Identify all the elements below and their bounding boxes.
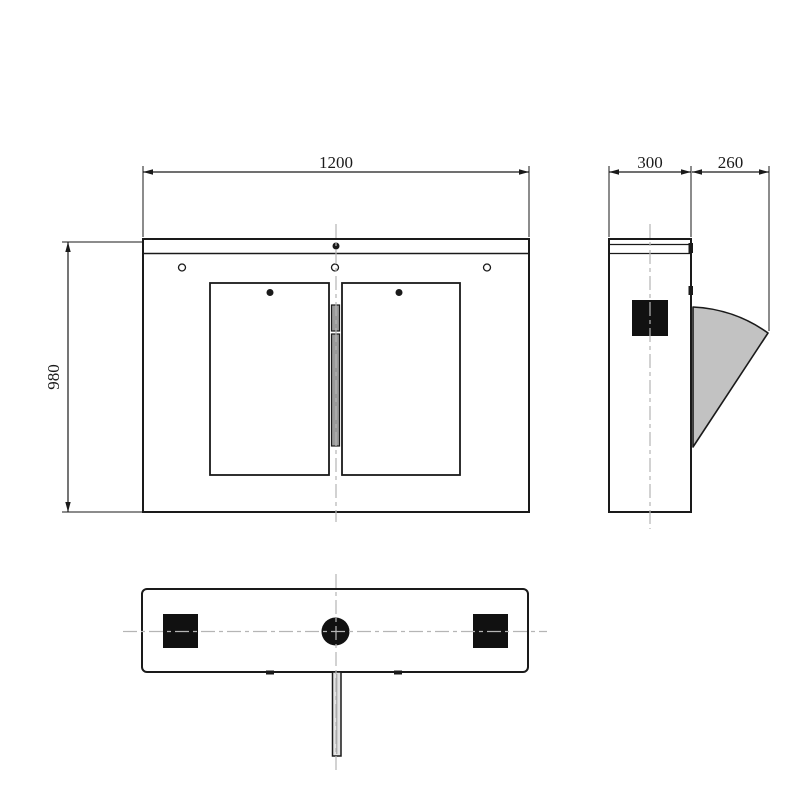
front-panel-lock-right xyxy=(396,289,403,296)
front-panel-lock-left xyxy=(267,289,274,296)
arrow-depth-right xyxy=(681,169,691,174)
dim-label-depth: 300 xyxy=(637,153,663,172)
plan-view xyxy=(142,589,528,756)
arrow-height-bottom xyxy=(65,502,70,512)
arrow-height-top xyxy=(65,242,70,252)
front-screw-hole-right xyxy=(484,264,491,271)
side-hinge-mount-mid xyxy=(689,286,694,295)
dim-label-flap-extension: 260 xyxy=(718,153,744,172)
arrow-depth-left xyxy=(609,169,619,174)
turnstile-three-view-drawing: 1200 300 260 980 xyxy=(0,0,800,800)
front-access-panel-right xyxy=(342,283,460,475)
side-flap-wing xyxy=(693,307,768,447)
plan-edge-mark-left xyxy=(266,671,274,675)
arrow-flap-left xyxy=(692,169,702,174)
side-hinge-mount-top xyxy=(689,243,694,253)
dim-label-width: 1200 xyxy=(319,153,353,172)
front-screw-hole-left xyxy=(179,264,186,271)
dim-label-height: 980 xyxy=(44,364,63,390)
arrow-width-right xyxy=(519,169,529,174)
front-access-panel-left xyxy=(210,283,329,475)
arrow-flap-right xyxy=(759,169,769,174)
plan-edge-mark-right xyxy=(394,671,402,675)
arrow-width-left xyxy=(143,169,153,174)
side-view xyxy=(609,239,768,512)
front-screw-hole-center xyxy=(332,264,339,271)
drawing-sheet: 1200 300 260 980 xyxy=(0,0,800,800)
